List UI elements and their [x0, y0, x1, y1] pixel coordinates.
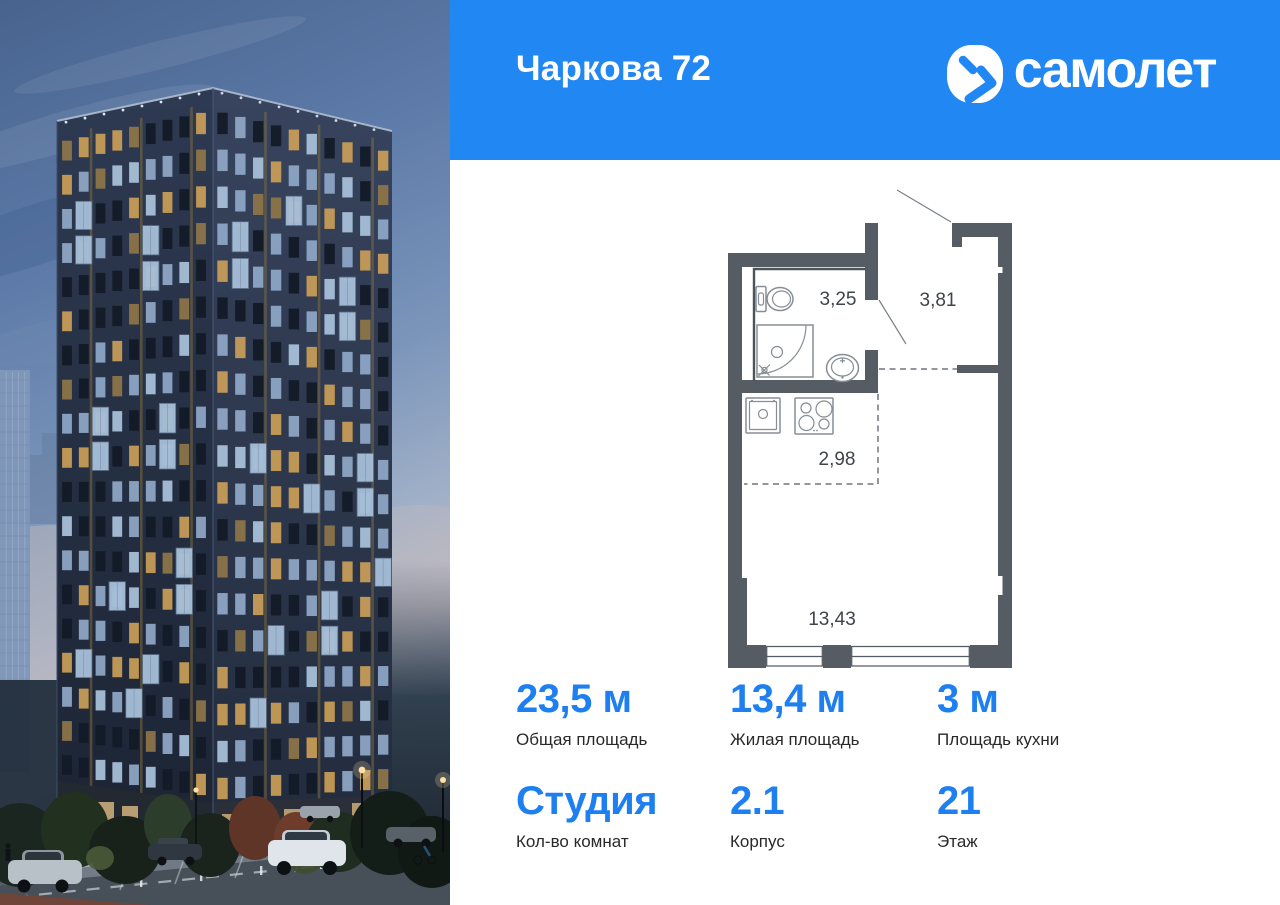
building-photo	[0, 0, 450, 905]
hallway-area-label: 3,81	[920, 290, 957, 311]
tower	[57, 88, 392, 858]
brand-logo: самолет	[947, 44, 1216, 104]
stat-kitchen-area: 3 м Площадь кухни	[937, 678, 1147, 750]
stat-kitchen-area-value: 3 м	[937, 678, 1147, 720]
stat-total-area-label: Общая площадь	[516, 730, 726, 750]
stat-building: 2.1 Корпус	[730, 780, 940, 852]
stat-building-label: Корпус	[730, 832, 940, 852]
header-banner: Чаркова 72 самолет	[450, 0, 1280, 160]
stat-floor-value: 21	[937, 780, 1147, 822]
stove	[795, 398, 833, 434]
brand-name: самолет	[1014, 41, 1216, 99]
floor-plan: 3,25 3,81 2,98 13,43	[722, 183, 1018, 675]
stat-floor: 21 Этаж	[937, 780, 1147, 852]
stat-building-value: 2.1	[730, 780, 940, 822]
stat-living-area-value: 13,4 м	[730, 678, 940, 720]
stat-rooms-value: Студия	[516, 780, 726, 822]
kitchen-area-label: 2,98	[819, 449, 856, 470]
plan-windows	[766, 644, 970, 669]
bathroom-sink	[827, 355, 859, 382]
kitchen-sink	[746, 398, 780, 433]
listing-card: Чаркова 72 самолет	[0, 0, 1280, 905]
samolet-logo-icon	[947, 45, 1003, 103]
bathroom-area-label: 3,25	[820, 289, 857, 310]
page-title: Чаркова 72	[516, 50, 711, 88]
stat-total-area: 23,5 м Общая площадь	[516, 678, 726, 750]
plan-walls	[728, 223, 1012, 668]
stat-rooms-label: Кол-во комнат	[516, 832, 726, 852]
living-area-label: 13,43	[808, 609, 856, 630]
toilet	[756, 287, 793, 312]
stat-kitchen-area-label: Площадь кухни	[937, 730, 1147, 750]
room-area-labels: 3,25 3,81 2,98 13,43	[808, 289, 956, 630]
stat-living-area: 13,4 м Жилая площадь	[730, 678, 940, 750]
shower	[757, 325, 813, 377]
stat-living-area-label: Жилая площадь	[730, 730, 940, 750]
info-panel: Чаркова 72 самолет	[450, 0, 1280, 905]
stat-floor-label: Этаж	[937, 832, 1147, 852]
stat-rooms: Студия Кол-во комнат	[516, 780, 726, 852]
floor-plan-drawing: 3,25 3,81 2,98 13,43	[722, 183, 1018, 675]
building-illustration	[0, 0, 450, 905]
door-swings	[879, 190, 951, 344]
stat-total-area-value: 23,5 м	[516, 678, 726, 720]
